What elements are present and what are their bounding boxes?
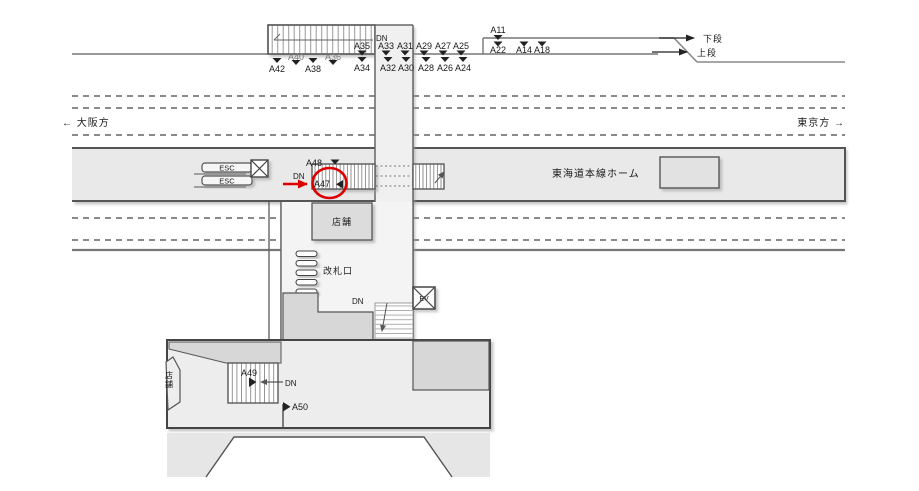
ad-position-label: A38 xyxy=(305,64,321,74)
diagram-canvas: 下段 上段 ← 大阪方 東京方 → DN xyxy=(0,0,919,491)
escalator-label: ESC xyxy=(219,164,235,173)
left-corridor-walls xyxy=(269,202,281,340)
escalator-label: ESC xyxy=(219,177,235,186)
entrance-notch xyxy=(206,437,452,477)
track-lines-lower xyxy=(72,218,845,250)
ad-position-label: A27 xyxy=(435,41,451,51)
ad-position-label: A33 xyxy=(378,41,394,51)
direction-west-label: ← 大阪方 xyxy=(62,116,110,129)
ad-position-label: A34 xyxy=(354,63,370,73)
right-structure-block xyxy=(413,341,489,390)
ad-position-label: A14 xyxy=(516,45,532,55)
highlighted-position-label: A47 xyxy=(314,179,330,189)
wall-diagonal xyxy=(674,38,697,62)
shop-box: 店舗 xyxy=(312,203,372,240)
platform-surface xyxy=(72,147,845,202)
station-floor-diagram: 下段 上段 ← 大阪方 東京方 → DN xyxy=(0,0,919,491)
platform-elevator-icon xyxy=(251,160,268,177)
platform-dn-label: DN xyxy=(293,172,305,181)
ad-position-label: A26 xyxy=(437,63,453,73)
ad-position-label: A42 xyxy=(269,64,285,74)
ad-position-label: A29 xyxy=(416,41,432,51)
lower-dn-label: DN xyxy=(285,379,297,388)
building-apron xyxy=(167,433,490,477)
track-lines-upper xyxy=(72,96,845,135)
ad-position-label: A18 xyxy=(534,45,550,55)
platform-band xyxy=(72,147,845,202)
ad-position-label: A28 xyxy=(418,63,434,73)
ad-position-label-a49: A49 xyxy=(241,368,257,378)
ad-position-label-a50: A50 xyxy=(292,402,308,412)
platform-structure-box xyxy=(660,157,719,188)
concourse: 店舗 改札口 DN EV xyxy=(281,202,435,363)
ad-position-label: A31 xyxy=(397,41,413,51)
ad-position-label: A30 xyxy=(398,63,414,73)
corner-shop-label: 店舗 xyxy=(165,370,174,389)
ad-position-label: A22 xyxy=(490,45,506,55)
ad-position-label: A32 xyxy=(380,63,396,73)
ad-position-label: A35 xyxy=(354,41,370,51)
upper-tier-label: 上段 xyxy=(697,47,717,58)
ad-position-label: A11 xyxy=(490,25,505,35)
lower-level-building: A49 DN A50 店舗 xyxy=(165,340,491,428)
concourse-dn-label: DN xyxy=(352,297,364,306)
shop-label: 店舗 xyxy=(332,216,352,227)
ad-position-label: A24 xyxy=(455,63,471,73)
ad-position-label: A25 xyxy=(453,41,469,51)
platform-name-label: 東海道本線ホーム xyxy=(552,167,640,180)
ad-position-label-a48: A48 xyxy=(306,158,322,168)
lower-tier-label: 下段 xyxy=(703,33,723,44)
concourse-elevator-icon: EV xyxy=(413,287,435,309)
direction-east-label: 東京方 → xyxy=(797,116,845,129)
ticket-gate-label: 改札口 xyxy=(323,265,353,276)
